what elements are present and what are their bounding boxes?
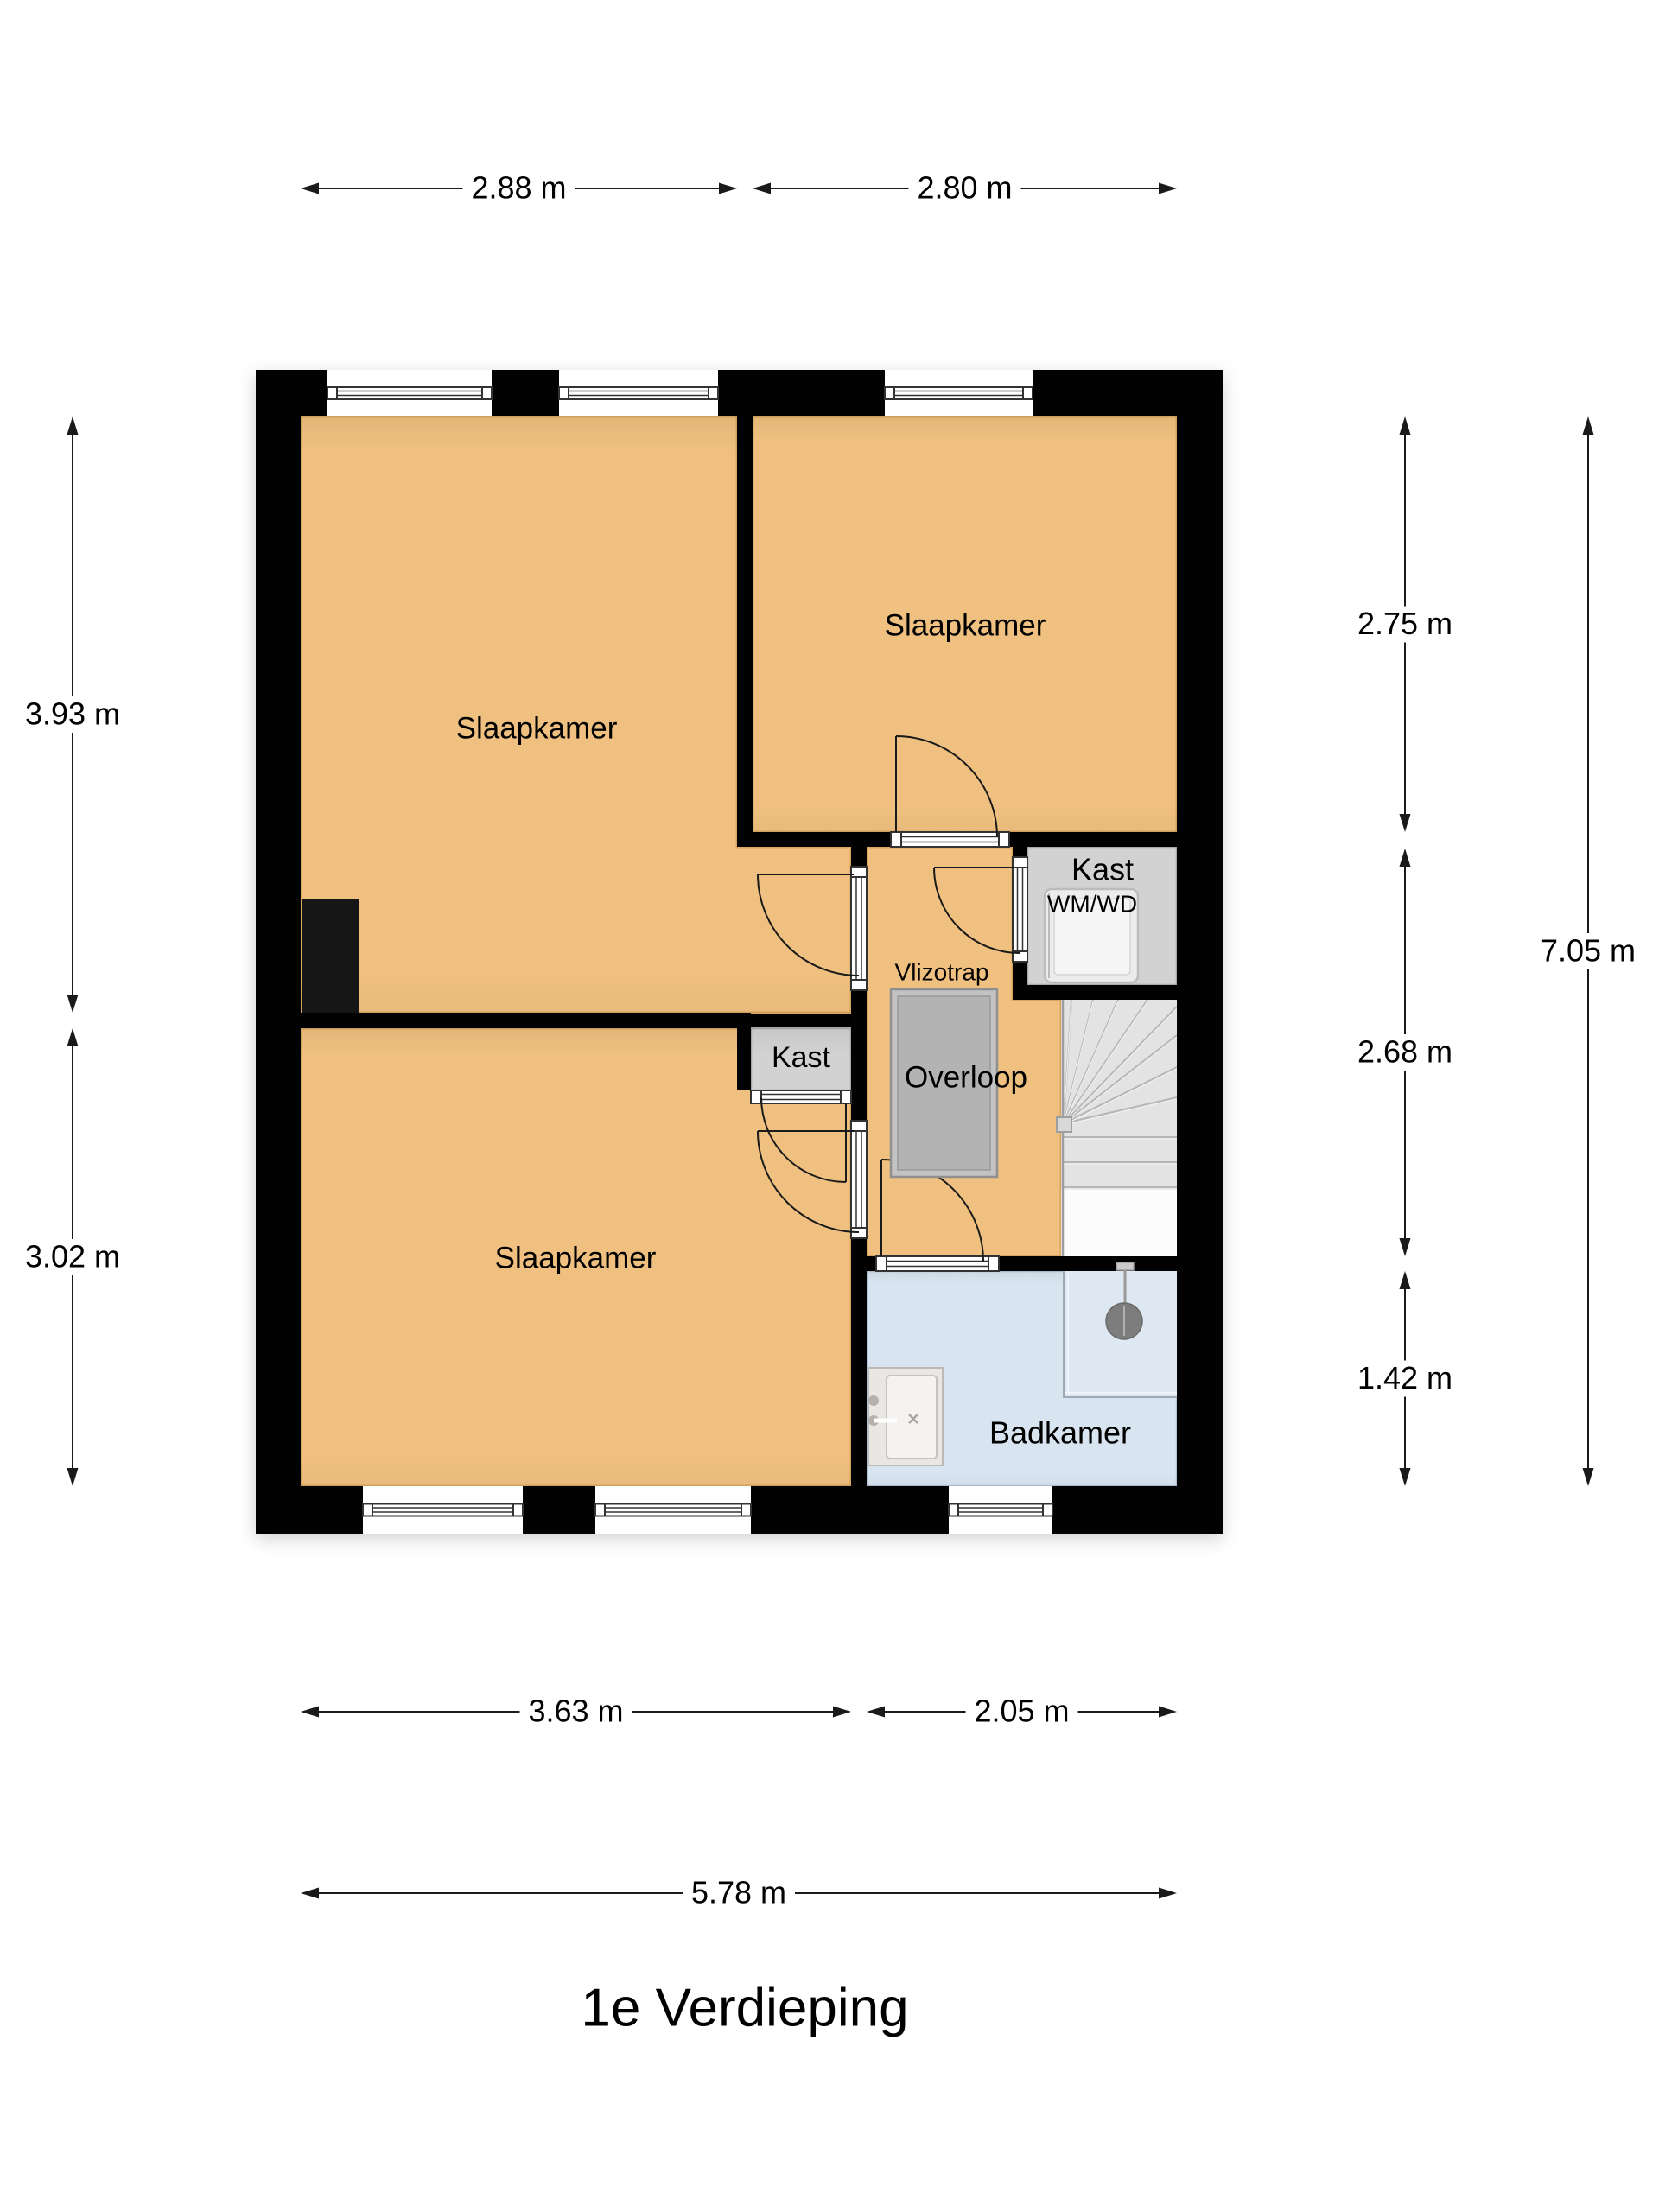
svg-text:3.93 m: 3.93 m — [25, 696, 120, 732]
svg-text:2.05 m: 2.05 m — [974, 1694, 1069, 1729]
svg-text:Badkamer: Badkamer — [989, 1415, 1131, 1451]
svg-text:2.68 m: 2.68 m — [1357, 1034, 1452, 1070]
svg-text:Slaapkamer: Slaapkamer — [885, 609, 1046, 643]
svg-text:3.02 m: 3.02 m — [25, 1239, 120, 1274]
svg-text:2.88 m: 2.88 m — [471, 170, 566, 206]
svg-text:3.63 m: 3.63 m — [528, 1694, 623, 1729]
svg-text:1.42 m: 1.42 m — [1357, 1360, 1452, 1395]
svg-text:2.75 m: 2.75 m — [1357, 606, 1452, 641]
svg-text:Kast: Kast — [1071, 852, 1134, 887]
svg-text:5.78 m: 5.78 m — [691, 1875, 786, 1910]
svg-text:1e Verdieping: 1e Verdieping — [581, 1979, 908, 2038]
svg-text:Slaapkamer: Slaapkamer — [495, 1242, 657, 1275]
svg-text:Vlizotrap: Vlizotrap — [895, 959, 989, 986]
svg-text:2.80 m: 2.80 m — [917, 170, 1012, 206]
svg-text:7.05 m: 7.05 m — [1541, 933, 1636, 969]
svg-text:Kast: Kast — [772, 1041, 831, 1074]
svg-text:WM/WD: WM/WD — [1047, 891, 1137, 918]
svg-text:Slaapkamer: Slaapkamer — [456, 712, 618, 746]
svg-text:Overloop: Overloop — [905, 1061, 1027, 1095]
